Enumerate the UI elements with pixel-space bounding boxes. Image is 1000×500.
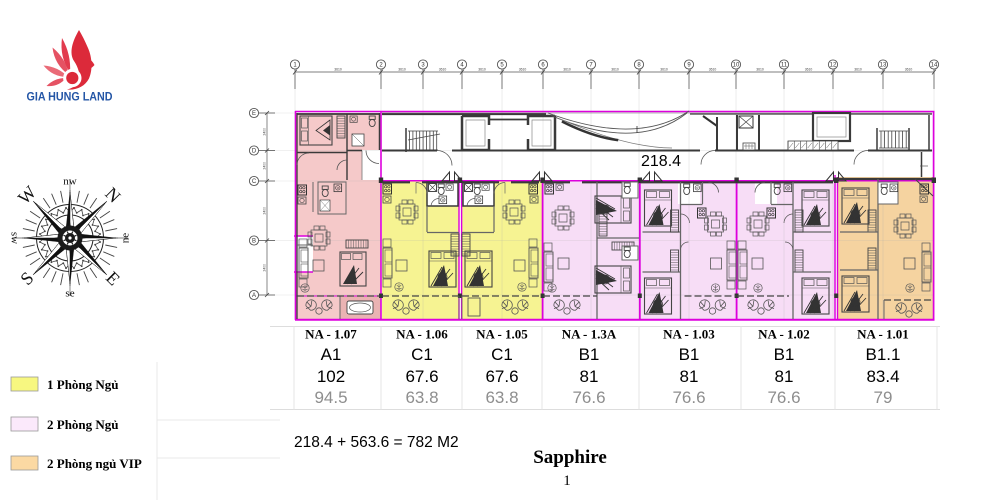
svg-text:NA - 1.06: NA - 1.06 — [396, 327, 448, 342]
svg-text:81: 81 — [680, 367, 699, 386]
svg-text:63.8: 63.8 — [405, 388, 438, 407]
svg-text:3610: 3610 — [611, 68, 619, 72]
svg-text:3610: 3610 — [805, 68, 813, 72]
svg-text:3610: 3610 — [439, 68, 447, 72]
svg-text:67.6: 67.6 — [405, 367, 438, 386]
svg-text:2400: 2400 — [263, 207, 267, 215]
svg-text:10: 10 — [733, 63, 740, 69]
svg-text:13: 13 — [880, 63, 887, 69]
svg-text:NA - 1.02: NA - 1.02 — [758, 327, 810, 342]
svg-text:76.6: 76.6 — [672, 388, 705, 407]
svg-text:2 Phòng Ngủ: 2 Phòng Ngủ — [47, 417, 119, 432]
svg-text:79: 79 — [874, 388, 893, 407]
svg-text:1 Phòng Ngủ: 1 Phòng Ngủ — [47, 377, 119, 392]
svg-text:B1: B1 — [679, 345, 700, 364]
svg-text:81: 81 — [580, 367, 599, 386]
svg-text:A1: A1 — [321, 345, 342, 364]
svg-text:Sapphire: Sapphire — [533, 447, 607, 468]
svg-text:sw: sw — [8, 232, 20, 244]
svg-text:63.8: 63.8 — [485, 388, 518, 407]
svg-text:83.4: 83.4 — [866, 367, 899, 386]
svg-text:14: 14 — [931, 63, 938, 69]
svg-text:1: 1 — [563, 473, 571, 489]
svg-text:2400: 2400 — [263, 128, 267, 136]
svg-text:B1: B1 — [774, 345, 795, 364]
svg-text:218.4 + 563.6 = 782 M2: 218.4 + 563.6 = 782 M2 — [294, 434, 459, 451]
svg-text:2 Phòng ngủ VIP: 2 Phòng ngủ VIP — [47, 456, 142, 471]
svg-text:81: 81 — [775, 367, 794, 386]
svg-text:76.6: 76.6 — [572, 388, 605, 407]
svg-text:NA - 1.03: NA - 1.03 — [663, 327, 715, 342]
svg-text:3610: 3610 — [709, 68, 717, 72]
svg-text:12: 12 — [830, 63, 837, 69]
svg-text:C: C — [252, 179, 257, 185]
svg-text:76.6: 76.6 — [767, 388, 800, 407]
svg-text:102: 102 — [317, 367, 345, 386]
svg-text:3610: 3610 — [398, 68, 406, 72]
svg-text:D: D — [252, 149, 257, 155]
svg-text:GIA HUNG LAND: GIA HUNG LAND — [27, 90, 113, 104]
svg-text:3610: 3610 — [334, 68, 342, 72]
svg-text:NA - 1.01: NA - 1.01 — [857, 327, 909, 342]
svg-text:11: 11 — [781, 63, 788, 69]
svg-text:B1.1: B1.1 — [866, 345, 901, 364]
svg-text:nw: nw — [63, 176, 77, 188]
svg-text:C1: C1 — [411, 345, 433, 364]
svg-text:ne: ne — [120, 233, 132, 244]
svg-text:3610: 3610 — [519, 68, 527, 72]
svg-text:2400: 2400 — [263, 264, 267, 272]
svg-text:3610: 3610 — [905, 68, 913, 72]
svg-text:94.5: 94.5 — [314, 388, 347, 407]
svg-text:C1: C1 — [491, 345, 513, 364]
svg-text:NA - 1.3A: NA - 1.3A — [562, 327, 617, 342]
svg-text:se: se — [65, 288, 74, 300]
svg-text:NA - 1.07: NA - 1.07 — [305, 327, 357, 342]
svg-text:B: B — [252, 239, 256, 245]
svg-text:3610: 3610 — [563, 68, 571, 72]
svg-text:3610: 3610 — [660, 68, 668, 72]
svg-text:3610: 3610 — [756, 68, 764, 72]
svg-text:67.6: 67.6 — [485, 367, 518, 386]
svg-text:B1: B1 — [579, 345, 600, 364]
svg-text:E: E — [252, 111, 256, 117]
svg-text:A: A — [252, 293, 256, 299]
svg-text:3610: 3610 — [478, 68, 486, 72]
svg-text:2400: 2400 — [263, 162, 267, 170]
svg-text:3610: 3610 — [854, 68, 862, 72]
svg-text:NA - 1.05: NA - 1.05 — [476, 327, 528, 342]
svg-text:218.4: 218.4 — [641, 153, 681, 170]
